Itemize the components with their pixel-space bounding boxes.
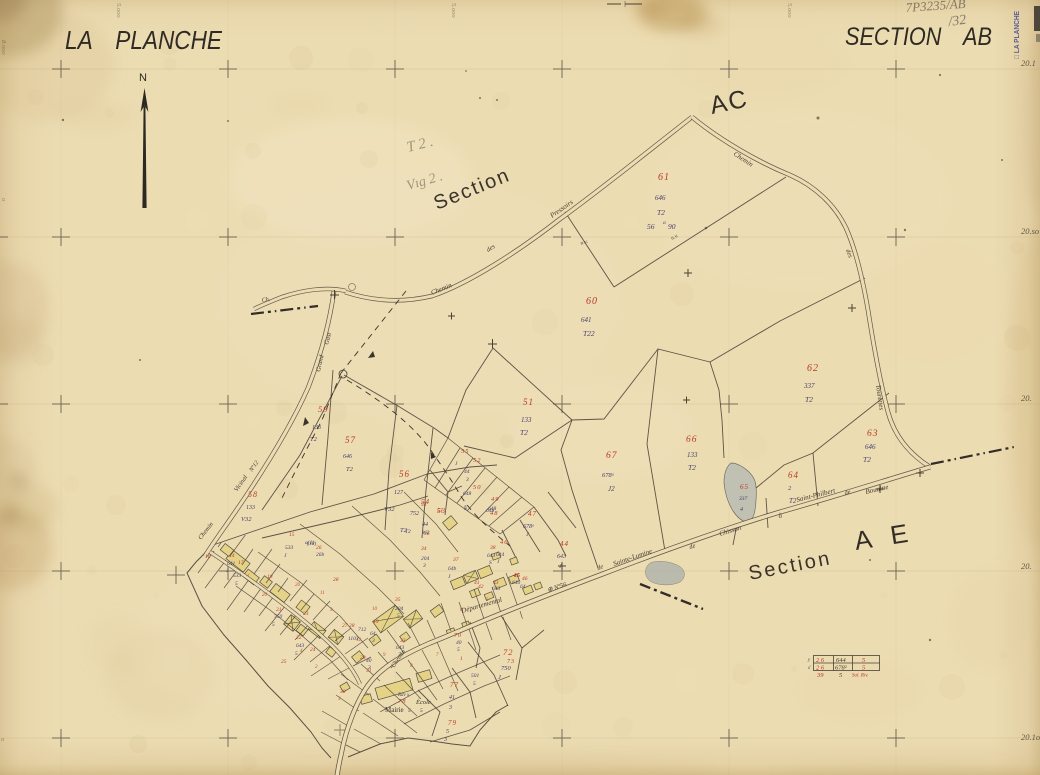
svg-text:1103: 1103: [348, 636, 359, 642]
svg-text:57: 57: [345, 435, 356, 445]
svg-text:63: 63: [867, 429, 879, 439]
svg-text:20.: 20.: [1021, 561, 1032, 571]
svg-text:2 6: 2 6: [816, 657, 825, 664]
svg-text:5: 5: [464, 506, 467, 512]
svg-text:3: 3: [422, 563, 426, 569]
svg-text:644: 644: [496, 551, 505, 558]
svg-text:3: 3: [397, 652, 401, 658]
svg-text:Rdv x: Rdv x: [397, 693, 410, 698]
svg-text:643: 643: [492, 585, 501, 592]
svg-text:Mairie: Mairie: [385, 706, 404, 714]
svg-text:SECTION AB: SECTION AB: [845, 23, 992, 51]
svg-text:26: 26: [316, 545, 322, 551]
svg-text:46: 46: [522, 575, 528, 582]
svg-text:643: 643: [296, 642, 305, 649]
svg-text:43: 43: [493, 579, 499, 586]
svg-text:LA PLANCHE: LA PLANCHE: [65, 25, 223, 55]
svg-text:643: 643: [557, 553, 566, 560]
svg-text:67: 67: [606, 451, 618, 461]
svg-text:646: 646: [655, 194, 666, 202]
svg-text:44: 44: [560, 540, 569, 548]
svg-text:Ch.: Ch.: [261, 297, 270, 304]
svg-text:21: 21: [276, 607, 282, 613]
svg-text:5: 5: [446, 729, 449, 735]
svg-text:4: 4: [740, 506, 743, 513]
svg-text:T2: T2: [688, 463, 696, 472]
svg-text:30: 30: [339, 689, 346, 695]
svg-text:3: 3: [443, 737, 447, 743]
svg-text:53: 53: [437, 508, 443, 514]
svg-text:24: 24: [310, 646, 316, 653]
svg-text:65: 65: [740, 483, 749, 491]
svg-text:501: 501: [471, 673, 480, 679]
svg-text:T2: T2: [520, 428, 528, 437]
svg-text:11: 11: [320, 591, 325, 596]
svg-text:712: 712: [358, 627, 367, 633]
svg-text:51: 51: [523, 397, 534, 407]
svg-text:77: 77: [450, 681, 459, 689]
svg-text:3: 3: [448, 705, 452, 711]
svg-text:J2: J2: [608, 485, 615, 493]
svg-text:64b: 64b: [448, 565, 457, 572]
svg-text:5: 5: [473, 681, 476, 687]
svg-text:16: 16: [205, 554, 211, 560]
svg-text:J: J: [526, 532, 529, 538]
svg-text:T2: T2: [789, 497, 797, 505]
svg-text:643: 643: [396, 644, 405, 651]
svg-text:641: 641: [581, 316, 592, 324]
svg-text:28: 28: [333, 577, 339, 583]
svg-text:646: 646: [865, 443, 876, 451]
svg-text:133: 133: [246, 505, 255, 511]
svg-text:26b: 26b: [316, 552, 325, 558]
svg-text:22: 22: [296, 635, 302, 641]
svg-text:5.ooo: 5.ooo: [115, 3, 122, 18]
svg-text:56: 56: [399, 469, 410, 479]
svg-text:3: 3: [367, 665, 371, 671]
svg-text:34: 34: [420, 545, 427, 552]
svg-text:59: 59: [318, 404, 329, 414]
svg-text:64: 64: [788, 470, 799, 480]
svg-text:40: 40: [366, 657, 372, 664]
svg-text:42: 42: [478, 583, 484, 590]
svg-text:T22: T22: [583, 329, 595, 338]
svg-text:644: 644: [836, 657, 847, 664]
svg-text:20.1o: 20.1o: [1021, 732, 1040, 742]
svg-text:3: 3: [371, 638, 375, 644]
svg-text:5.ooo: 5.ooo: [786, 3, 793, 18]
svg-text:337: 337: [738, 496, 748, 502]
svg-text:□ LA PLANCHE: □ LA PLANCHE: [1014, 11, 1021, 59]
svg-text:10: 10: [372, 607, 378, 612]
svg-text:T2: T2: [805, 395, 813, 404]
svg-text:23: 23: [303, 611, 309, 617]
svg-text:52: 52: [473, 457, 482, 464]
svg-text:56: 56: [647, 222, 655, 231]
svg-text:14: 14: [229, 552, 235, 559]
svg-text:50: 50: [473, 484, 482, 491]
svg-text:648: 648: [463, 490, 472, 497]
svg-text:646: 646: [343, 453, 352, 460]
svg-text:2 6: 2 6: [816, 665, 825, 672]
svg-text:5: 5: [457, 647, 460, 653]
svg-text:5: 5: [420, 708, 423, 714]
svg-text:90: 90: [668, 222, 676, 231]
svg-text:55: 55: [461, 448, 470, 455]
svg-text:5.ooo: 5.ooo: [450, 3, 457, 18]
svg-text:S: S: [489, 560, 492, 566]
svg-text:61: 61: [658, 172, 670, 183]
svg-text:W2: W2: [422, 530, 430, 536]
svg-text:5: 5: [408, 708, 411, 714]
svg-text:40: 40: [456, 639, 462, 646]
svg-text:643: 643: [487, 552, 496, 559]
svg-text:44: 44: [422, 521, 428, 528]
svg-text:133: 133: [521, 416, 532, 424]
svg-text:28: 28: [349, 623, 355, 629]
svg-text:49: 49: [491, 496, 500, 503]
svg-text:/32: /32: [946, 13, 967, 30]
svg-text:70: 70: [454, 633, 462, 639]
svg-text:a: a: [663, 220, 666, 226]
svg-text:39: 39: [816, 672, 824, 679]
svg-text:533: 533: [233, 573, 242, 579]
svg-text:64: 64: [370, 630, 376, 637]
svg-text:678ᵃ: 678ᵃ: [523, 524, 534, 530]
svg-text:20: 20: [262, 593, 268, 598]
svg-text:60: 60: [586, 296, 598, 307]
svg-text:25: 25: [281, 659, 287, 665]
svg-text:678²: 678²: [835, 665, 848, 672]
svg-text:133: 133: [312, 425, 321, 431]
svg-text:T2: T2: [657, 208, 665, 217]
svg-text:20.: 20.: [1021, 393, 1032, 403]
svg-text:641: 641: [227, 560, 236, 567]
svg-text:35: 35: [394, 597, 401, 603]
svg-text:5: 5: [295, 651, 298, 657]
svg-text:78: 78: [398, 698, 407, 705]
svg-text:66: 66: [686, 435, 698, 445]
svg-text:15: 15: [289, 532, 295, 538]
svg-text:5: 5: [235, 581, 238, 587]
svg-text:648: 648: [488, 505, 497, 512]
svg-text:58: 58: [248, 490, 258, 499]
svg-text:V32: V32: [384, 506, 395, 513]
svg-text:J: J: [559, 564, 562, 570]
svg-text:678ᵃ: 678ᵃ: [602, 472, 615, 479]
svg-text:18: 18: [267, 574, 273, 580]
svg-text:533: 533: [285, 545, 294, 551]
svg-text:29: 29: [360, 655, 366, 661]
svg-text:750: 750: [274, 614, 283, 620]
svg-text:École: École: [415, 698, 431, 706]
svg-text:62: 62: [807, 363, 819, 374]
svg-text:3: 3: [465, 477, 469, 483]
svg-text:204: 204: [395, 605, 404, 612]
svg-text:T2: T2: [310, 436, 318, 443]
svg-text:T2: T2: [405, 529, 411, 535]
svg-text:33: 33: [399, 638, 406, 644]
svg-text:127: 127: [394, 490, 404, 496]
svg-text:64: 64: [520, 583, 526, 590]
svg-text:8.ooo: 8.ooo: [0, 40, 7, 55]
svg-text:54: 54: [421, 501, 427, 508]
svg-text:27: 27: [342, 623, 348, 629]
svg-text:72: 72: [503, 647, 514, 657]
svg-text:5: 5: [397, 613, 400, 619]
svg-text:T2: T2: [863, 455, 871, 464]
svg-text:337: 337: [803, 382, 815, 390]
svg-text:750: 750: [501, 665, 512, 672]
svg-text:752: 752: [410, 511, 419, 517]
svg-text:204: 204: [421, 555, 430, 562]
svg-text:46: 46: [500, 539, 509, 546]
svg-text:38: 38: [489, 545, 496, 551]
svg-text:5: 5: [272, 622, 275, 628]
svg-text:19: 19: [373, 619, 379, 625]
svg-text:20.so: 20.so: [1021, 226, 1039, 236]
svg-text:41: 41: [449, 694, 455, 701]
svg-text:44: 44: [464, 468, 470, 475]
svg-text:V32: V32: [241, 516, 252, 523]
svg-text:Sol. Riv.: Sol. Riv.: [852, 674, 868, 679]
svg-text:1: 1: [460, 656, 463, 662]
svg-text:17: 17: [238, 560, 244, 566]
svg-text:79: 79: [448, 719, 457, 727]
svg-text:47: 47: [528, 510, 537, 518]
svg-text:T2: T2: [346, 466, 354, 473]
svg-text:26: 26: [295, 583, 301, 588]
svg-text:(18): (18): [307, 540, 316, 547]
svg-text:N: N: [139, 72, 147, 84]
svg-text:37: 37: [452, 557, 459, 563]
svg-text:45: 45: [514, 572, 520, 579]
svg-text:20.1: 20.1: [1021, 58, 1036, 68]
svg-text:133: 133: [687, 451, 698, 459]
